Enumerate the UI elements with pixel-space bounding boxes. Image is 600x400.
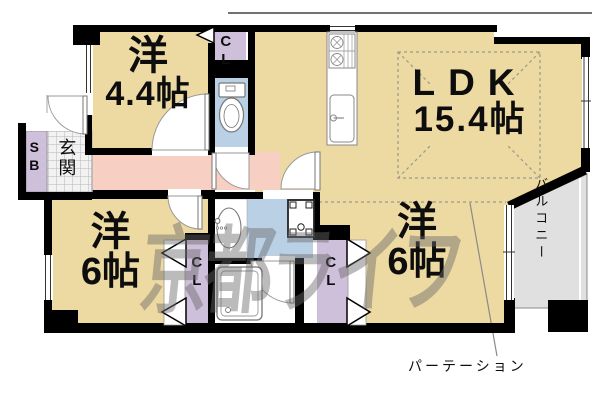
room-ldk-label: LDK 15.4帖: [385, 64, 555, 137]
washing-machine-icon: [288, 200, 314, 237]
balcony-label: バルコニー: [534, 177, 547, 305]
room-4-4-size: 4.4帖: [78, 77, 218, 112]
room-6-right-label: 洋 6帖: [352, 202, 482, 282]
hallway-floor: [92, 152, 280, 190]
room-6-right-size: 6帖: [352, 243, 482, 282]
room-6-left-size: 6帖: [48, 253, 173, 292]
shoebox-label: SB: [27, 139, 41, 189]
bathtub-icon: [217, 267, 262, 320]
room-4-4-label: 洋 4.4帖: [78, 36, 218, 111]
window-balcony-sliding: [503, 205, 515, 300]
room-6-right-type: 洋: [352, 202, 482, 243]
room-ldk-size: 15.4帖: [385, 102, 555, 138]
entrance-label: 玄関: [57, 138, 75, 190]
closet-top-label: CL: [218, 33, 233, 63]
window-ldk-east: [581, 57, 591, 148]
room-ldk-type: LDK: [385, 64, 555, 102]
closet-left-label: CL: [189, 254, 204, 314]
room-6-left-type: 洋: [48, 212, 173, 253]
kitchen-counter: [327, 32, 357, 145]
kitchen-sink-icon: [330, 95, 354, 142]
room-6-left-label: 洋 6帖: [48, 212, 173, 292]
partition-label: パーテーション: [408, 359, 527, 373]
stove-icon: [329, 34, 355, 68]
toilet-icon: [219, 83, 245, 132]
closet-right-label: CL: [323, 254, 338, 314]
room-4-4-type: 洋: [78, 36, 218, 77]
floor-plan: 洋 4.4帖 LDK 15.4帖 洋 6帖 洋 6帖 CL CL CL SB 玄…: [0, 0, 600, 400]
